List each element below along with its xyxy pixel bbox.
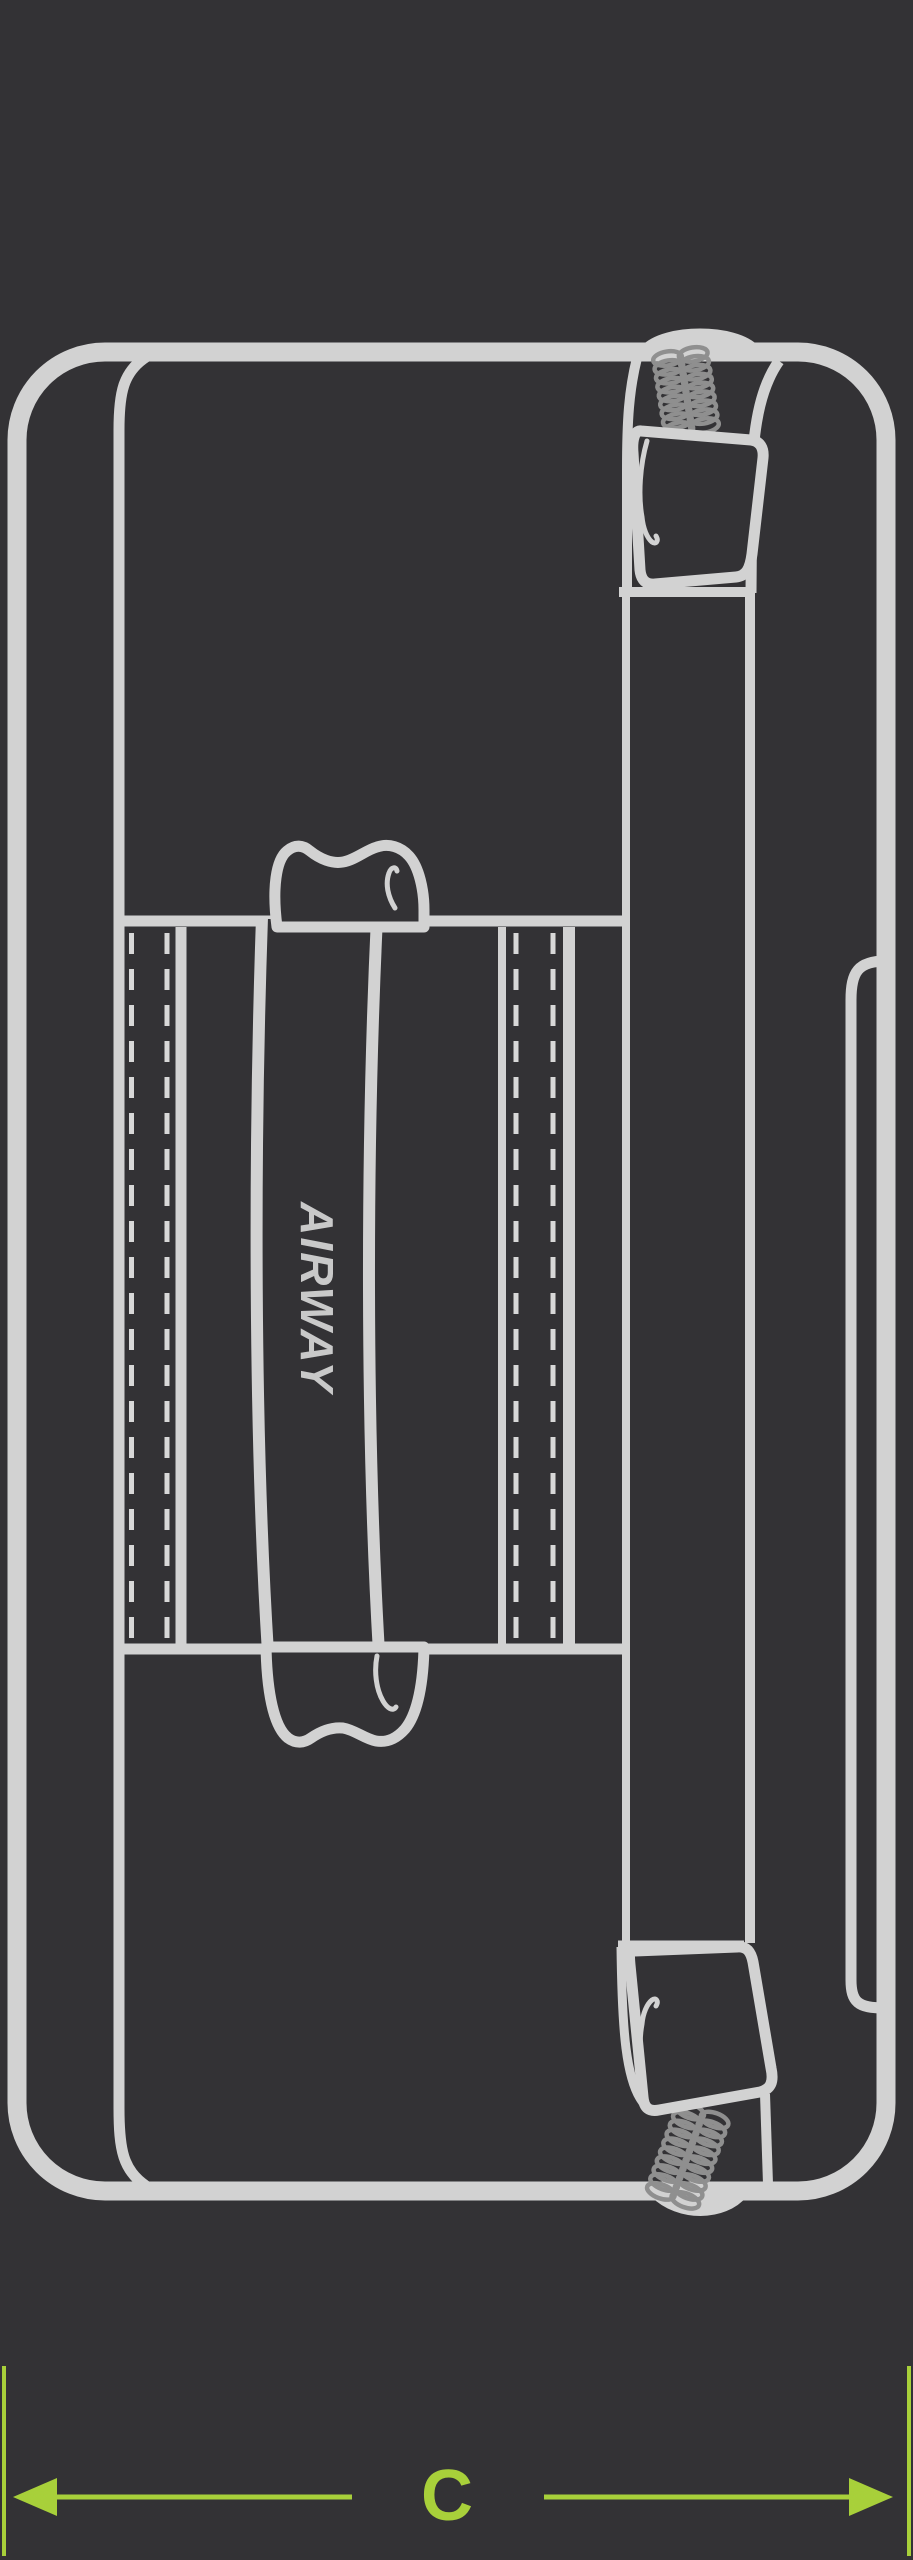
zipper-pull-top — [633, 431, 763, 584]
bottom-placket-right-edge — [765, 2094, 768, 2184]
handle-brand-label: AIRWAY — [291, 1201, 343, 1396]
diagram-canvas: AIRWAY C — [0, 0, 913, 2560]
handle-top-end-fold — [275, 845, 424, 927]
handle-bottom-end-fold — [266, 1647, 424, 1742]
bag-dimension-diagram: AIRWAY C — [0, 0, 913, 2560]
dimension-label: C — [421, 2456, 473, 2536]
zipper-pull-top-body — [633, 431, 763, 584]
zipper-pull-bottom — [629, 1947, 772, 2111]
zipper-pull-bottom-body — [629, 1947, 772, 2111]
